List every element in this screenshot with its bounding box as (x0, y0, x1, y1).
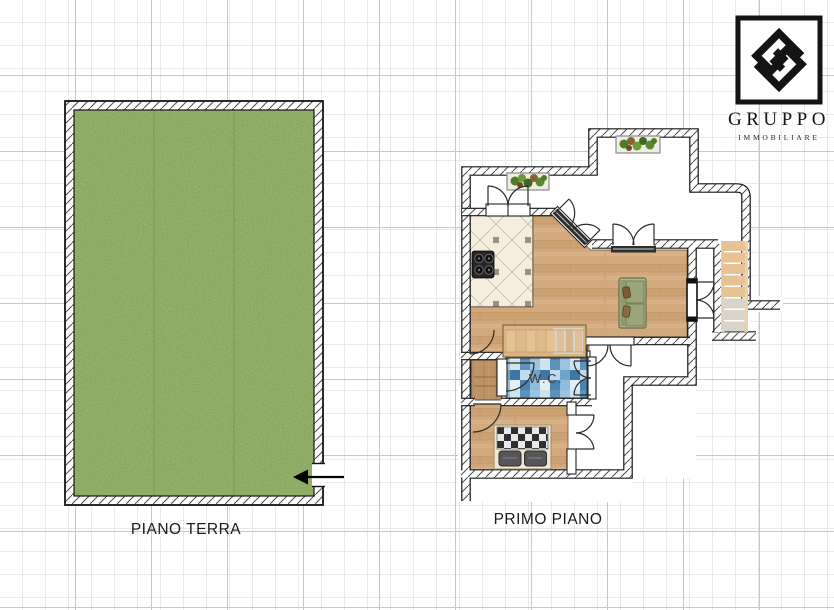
plant-box-terrace-top (616, 136, 660, 153)
logo-mark (738, 18, 820, 102)
garden-area (74, 110, 314, 496)
wc-room-label: W.C. (504, 371, 588, 386)
logo-brand-text: GRUPPO (722, 109, 834, 131)
stove (472, 251, 494, 278)
floor-plans-graphic (0, 0, 834, 610)
stairs-door-frame (687, 279, 697, 321)
double-bed (494, 425, 551, 469)
logo-tagline-text: IMMOBILIARE (722, 133, 834, 142)
first-floor-label: PRIMO PIANO (448, 511, 648, 529)
garden-gate-opening (312, 464, 326, 487)
ground-floor-label: PIANO TERRA (56, 521, 316, 539)
internal-staircase (503, 325, 586, 357)
floorplan-canvas: PIANO TERRA PRIMO PIANO W.C. GRUPPO IMMO… (0, 0, 834, 610)
first-floor-plan (458, 129, 783, 502)
ground-floor-plan (65, 101, 344, 505)
sofa (619, 278, 646, 328)
